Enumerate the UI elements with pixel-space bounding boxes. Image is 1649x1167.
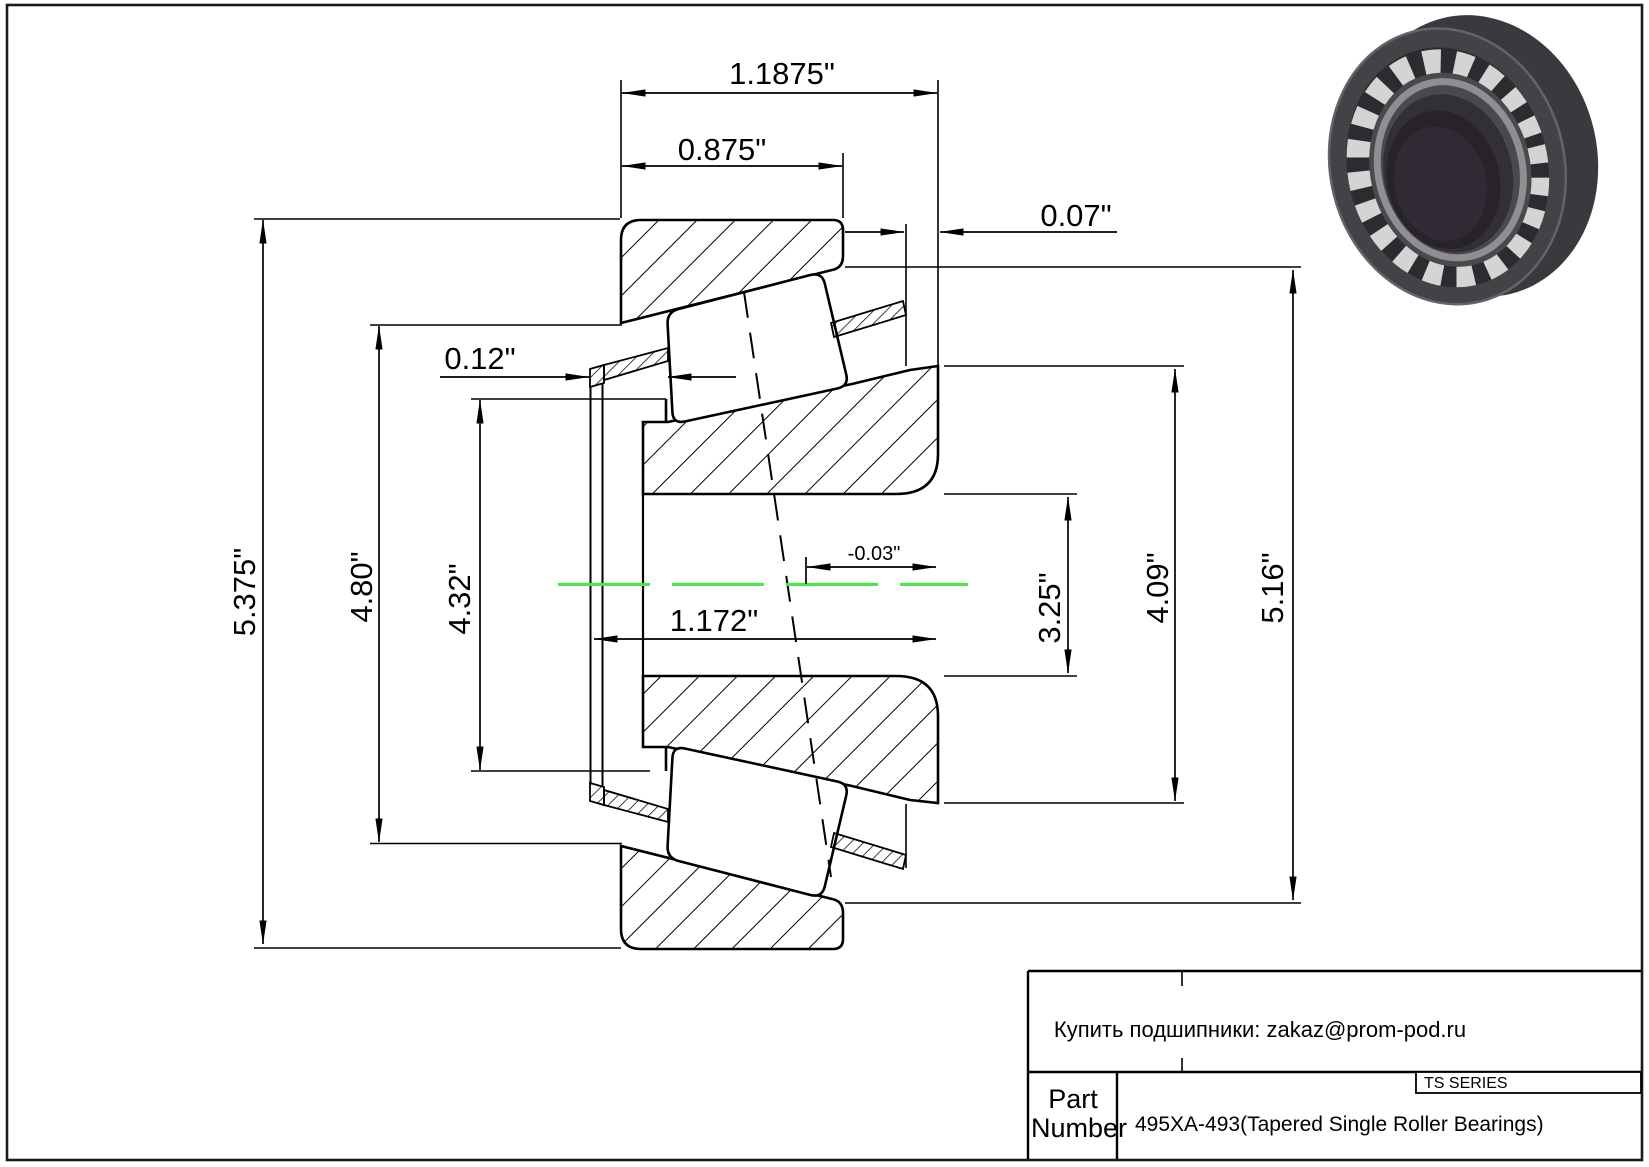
dim-left-shoulder-outer: 4.80" [344,551,379,622]
series-label: TS SERIES [1424,1075,1508,1092]
drawing-sheet: 1.1875" 0.875" 0.07" 0.12" 1.172" -0.03"… [0,0,1649,1167]
dim-effective-center: -0.03" [848,543,901,565]
dim-left-shoulder-inner: 4.32" [442,563,477,634]
dim-cone-back-shoulder: 4.09" [1140,552,1175,623]
bearing-photo-3d [1298,0,1628,331]
bearing-drawing: 1.1875" 0.875" 0.07" 0.12" 1.172" -0.03"… [0,0,1649,1167]
dim-overall-width: 1.1875" [729,56,835,91]
dim-cup-back-shoulder: 5.16" [1255,552,1290,623]
part-number-value: 495XA-493(Tapered Single Roller Bearings… [1135,1113,1544,1136]
vendor-contact: Купить подшипники: zakaz@prom-pod.ru [1054,1017,1466,1042]
dim-outer-diameter: 5.375" [227,548,262,637]
title-block-text: Купить подшипники: zakaz@prom-pod.ru Par… [1031,1017,1544,1143]
part-label-line1: Part [1048,1084,1098,1114]
dim-cone-width: 1.172" [670,603,759,638]
dim-bore-diameter: 3.25" [1032,572,1067,643]
dim-cup-width: 0.875" [678,132,767,167]
dim-cup-front-standout: 0.07" [1040,198,1111,233]
dim-cone-front-standout: 0.12" [444,341,515,376]
part-label-line2: Number [1031,1113,1127,1143]
